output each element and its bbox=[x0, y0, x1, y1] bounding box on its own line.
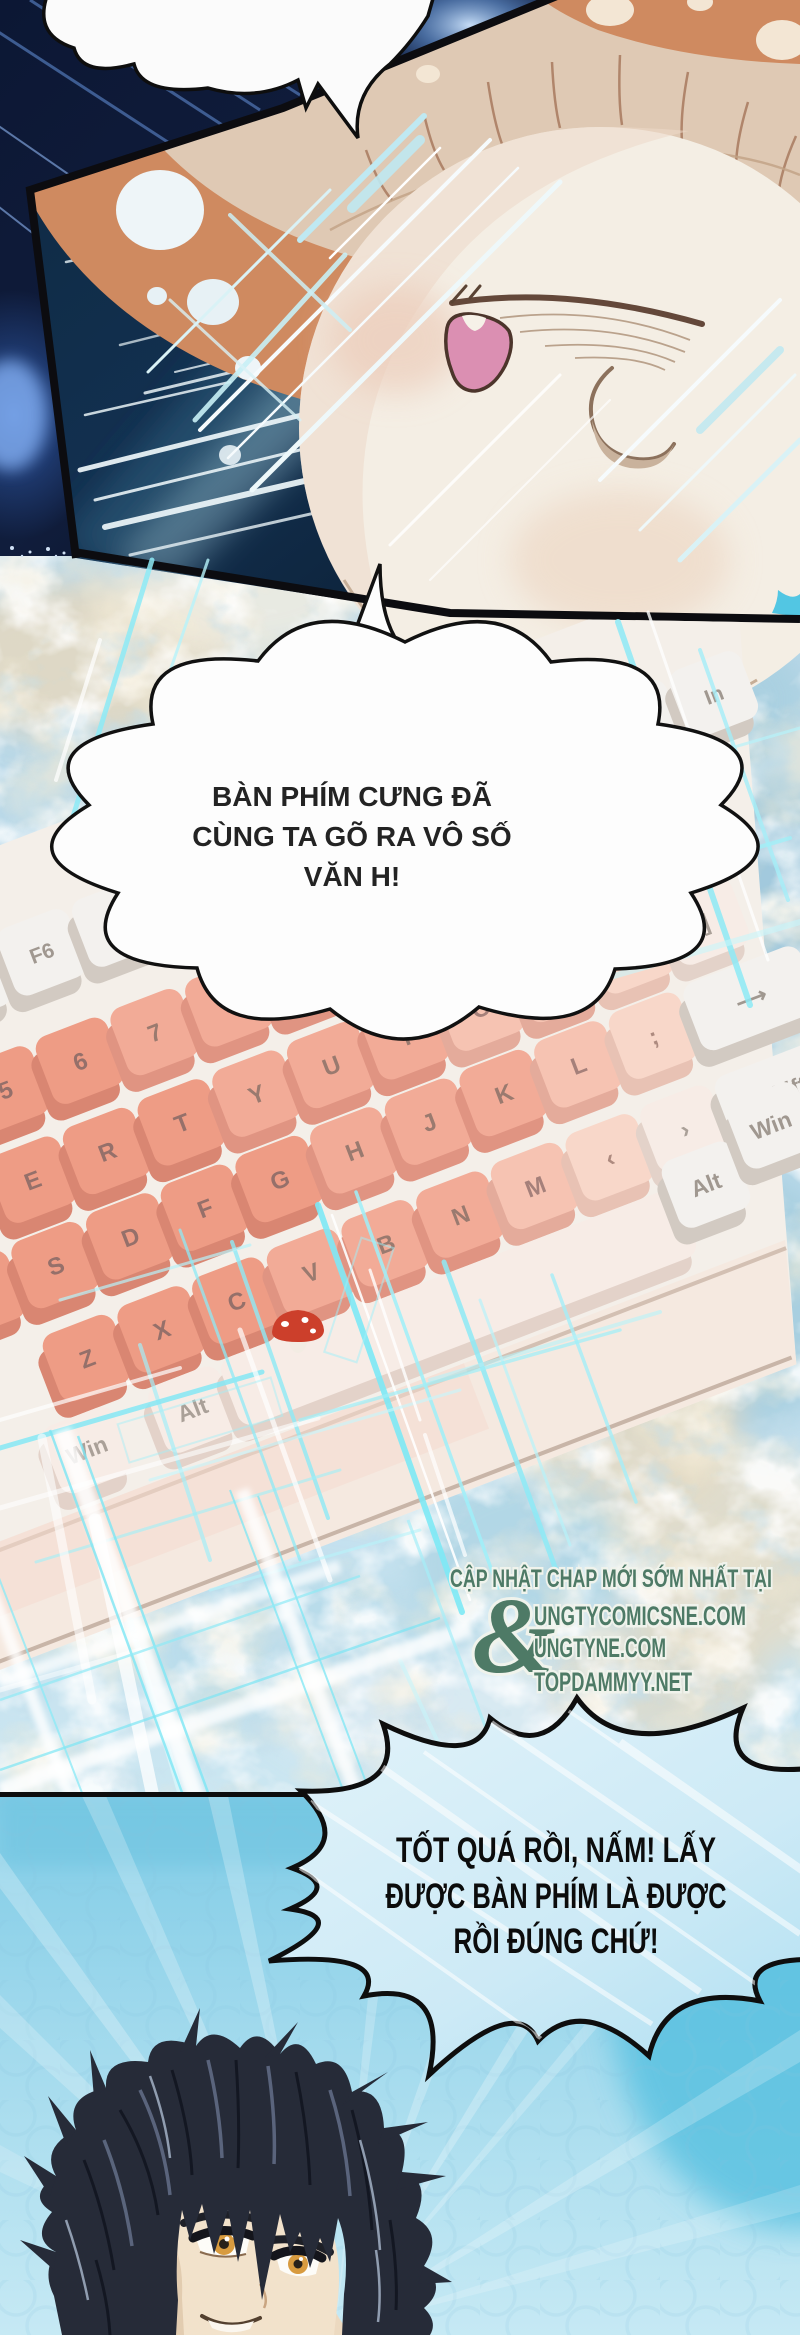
svg-text:UNGTYCOMICSNE.COM: UNGTYCOMICSNE.COM bbox=[534, 1601, 746, 1631]
svg-text:UNGTYNE.COM: UNGTYNE.COM bbox=[534, 1633, 666, 1663]
svg-text:BÀN PHÍM CƯNG ĐÃ: BÀN PHÍM CƯNG ĐÃ bbox=[212, 781, 492, 812]
svg-text:RỒI ĐÚNG CHỨ!: RỒI ĐÚNG CHỨ! bbox=[454, 1921, 659, 1961]
svg-text:CÙNG TA GÕ RA VÔ SỐ: CÙNG TA GÕ RA VÔ SỐ bbox=[192, 820, 511, 852]
svg-text:VĂN H!: VĂN H! bbox=[304, 861, 400, 892]
svg-text:TỐT QUÁ RỒI, NẤM! LẤY: TỐT QUÁ RỒI, NẤM! LẤY bbox=[396, 1830, 716, 1870]
svg-text:ĐƯỢC BÀN PHÍM LÀ ĐƯỢC: ĐƯỢC BÀN PHÍM LÀ ĐƯỢC bbox=[386, 1876, 727, 1916]
svg-text:TOPDAMMYY.NET: TOPDAMMYY.NET bbox=[534, 1667, 692, 1697]
